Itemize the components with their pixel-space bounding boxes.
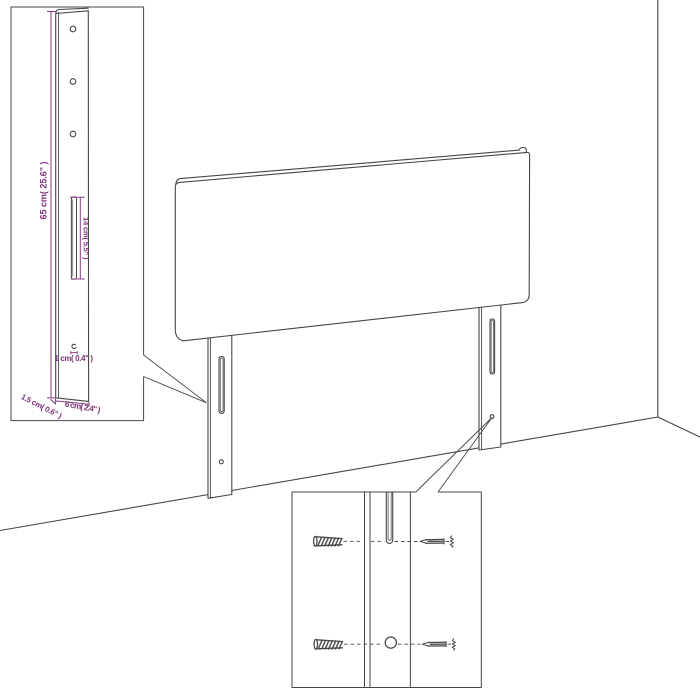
svg-text:1 cm( 0.4" ): 1 cm( 0.4" ) <box>55 354 94 363</box>
svg-text:14 cm( 5.5" ): 14 cm( 5.5" ) <box>82 217 91 260</box>
svg-text:65 cm( 25.6" ): 65 cm( 25.6" ) <box>39 162 49 220</box>
